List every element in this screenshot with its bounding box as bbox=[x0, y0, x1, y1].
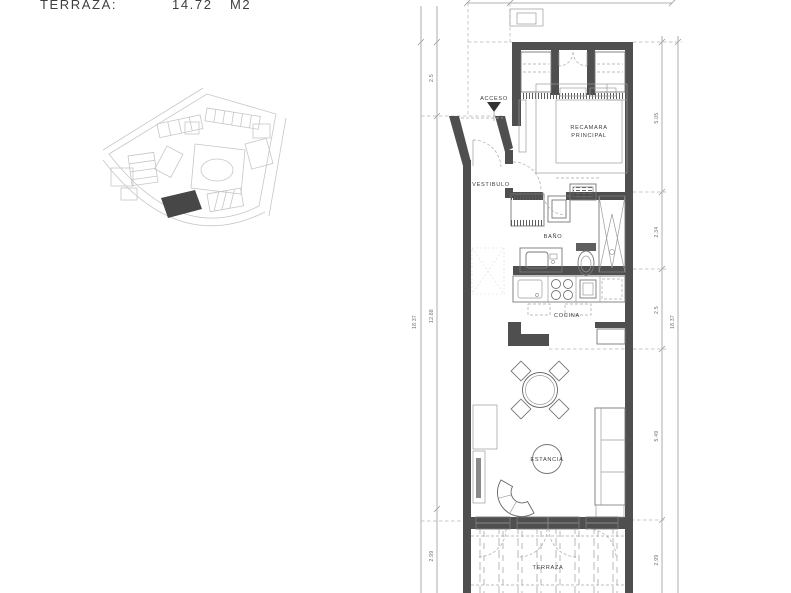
drawing-canvas: 18.37 2.5 12.88 2.99 5.05 2.34 2.5 5.49 … bbox=[0, 0, 791, 593]
stove bbox=[552, 280, 573, 300]
vestibulo-label: VESTIBULO bbox=[472, 182, 510, 188]
svg-text:5.49: 5.49 bbox=[654, 431, 660, 442]
dimension-left-segments: 2.5 12.88 2.99 bbox=[429, 6, 440, 593]
dining-set bbox=[511, 361, 569, 419]
terrace bbox=[471, 529, 625, 593]
svg-text:18.37: 18.37 bbox=[412, 315, 418, 329]
estancia-label: ESTANCIA bbox=[530, 457, 563, 463]
dimension-left-total: 18.37 bbox=[412, 6, 424, 593]
dimension-lines: 18.37 2.5 12.88 2.99 5.05 2.34 2.5 5.49 … bbox=[412, 0, 682, 593]
bedroom-door-arc bbox=[513, 162, 541, 190]
bath-door-arc bbox=[543, 192, 566, 215]
svg-text:18.37: 18.37 bbox=[670, 315, 676, 329]
cocina-label: COCINA bbox=[554, 313, 580, 319]
bano-label: BAÑO bbox=[544, 233, 563, 240]
svg-text:12.88: 12.88 bbox=[429, 309, 435, 323]
kitchen-cabinet bbox=[597, 329, 625, 344]
vestibule-closet bbox=[511, 194, 570, 226]
sofa bbox=[595, 408, 625, 517]
floor-plan: ACCESO VESTIBULO BAÑO RECAMARA PRINCIPAL… bbox=[449, 9, 633, 593]
svg-text:2.5: 2.5 bbox=[429, 74, 435, 82]
svg-text:2.99: 2.99 bbox=[429, 551, 435, 562]
terraza-label: TERRAZA bbox=[532, 565, 563, 571]
site-plan-sketch bbox=[103, 88, 286, 226]
roof-detail bbox=[510, 9, 543, 26]
svg-text:2.34: 2.34 bbox=[654, 227, 660, 238]
acceso-arrow bbox=[487, 102, 501, 112]
svg-text:5.05: 5.05 bbox=[654, 113, 660, 124]
kitchen bbox=[513, 276, 625, 344]
svg-text:2.99: 2.99 bbox=[654, 555, 660, 566]
shower bbox=[599, 196, 625, 272]
recamara-label-line2: PRINCIPAL bbox=[571, 133, 606, 139]
svg-text:2.5: 2.5 bbox=[654, 306, 660, 314]
bathroom bbox=[520, 192, 625, 275]
shaft-box bbox=[472, 248, 504, 294]
tv-console bbox=[473, 405, 497, 503]
room-labels: ACCESO VESTIBULO BAÑO RECAMARA PRINCIPAL… bbox=[472, 96, 608, 571]
armchair bbox=[497, 480, 534, 517]
bedroom-closets bbox=[521, 52, 625, 99]
recamara-label-line1: RECAMARA bbox=[570, 125, 607, 131]
fridge-dashed bbox=[602, 279, 622, 299]
dimension-right-segments: 5.05 2.34 2.5 5.49 2.99 bbox=[654, 36, 665, 593]
site-highlighted-building bbox=[161, 190, 202, 218]
dimension-right-total: 18.37 bbox=[670, 36, 681, 593]
entry-door-arc bbox=[473, 140, 501, 168]
acceso-label: ACCESO bbox=[480, 96, 508, 102]
